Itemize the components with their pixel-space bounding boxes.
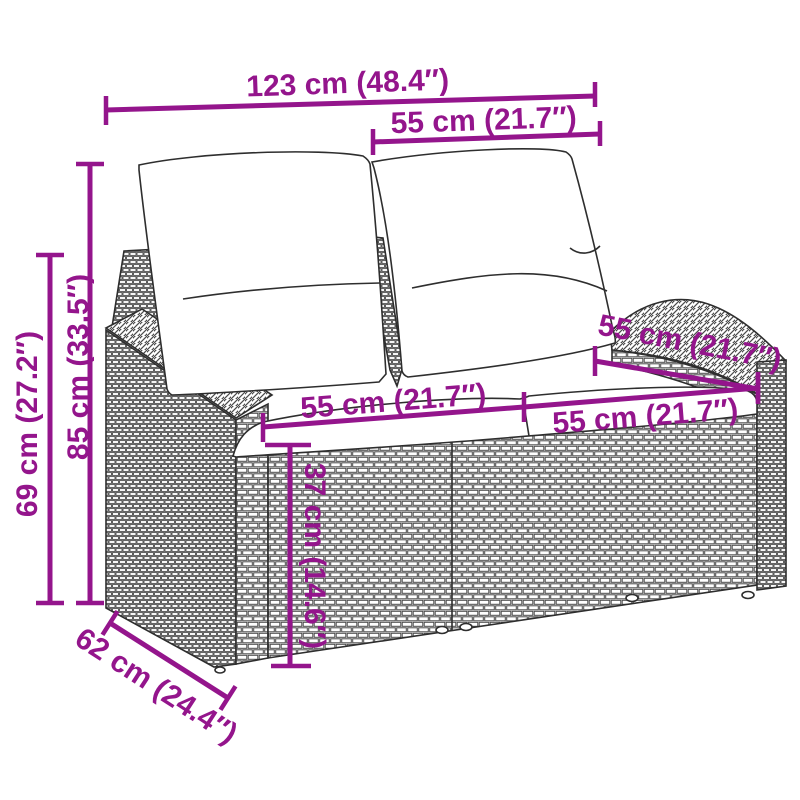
foot <box>742 592 754 599</box>
foot <box>626 595 638 602</box>
foot <box>436 627 448 634</box>
product-dimension-diagram: 123 cm (48.4″) 55 cm (21.7″) 85 cm (33.5… <box>0 0 800 800</box>
foot <box>460 624 472 631</box>
back-cushions <box>139 149 615 395</box>
dim-overall-width-label: 123 cm (48.4″) <box>246 63 450 103</box>
foot <box>215 667 225 673</box>
dim-backrest-width-label: 55 cm (21.7″) <box>390 101 577 140</box>
dim-armrest-height-label: 69 cm (27.2″) <box>11 331 44 517</box>
dim-total-height-label: 85 cm (33.5″) <box>62 274 95 460</box>
back-cushion-left <box>139 152 386 395</box>
dim-seat-height-label: 37 cm (14.6″) <box>298 463 331 649</box>
dimension-diagram-canvas: 123 cm (48.4″) 55 cm (21.7″) 85 cm (33.5… <box>0 0 800 800</box>
right-side-panel <box>757 360 786 590</box>
back-cushion-right <box>372 149 615 377</box>
